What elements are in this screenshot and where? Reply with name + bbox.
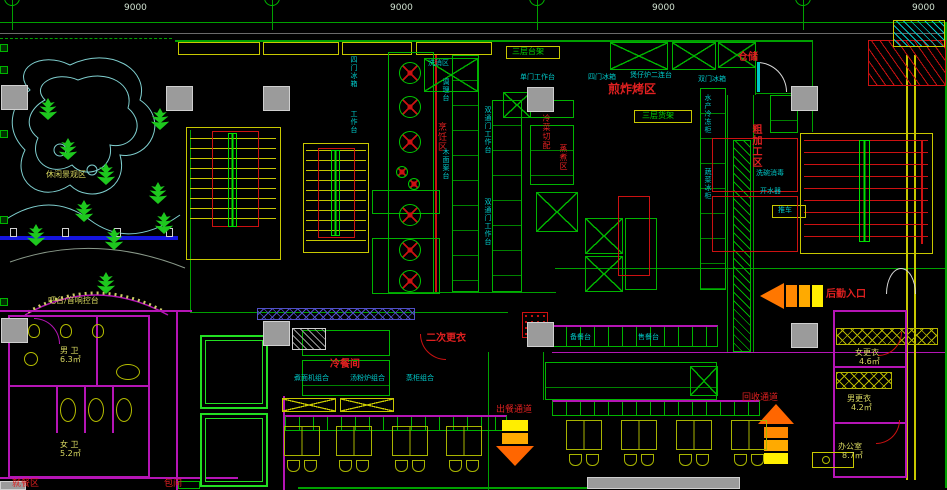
wall	[176, 312, 178, 490]
cabinet	[263, 42, 339, 55]
chair	[624, 454, 637, 466]
equip-label: 单门工作台	[520, 74, 555, 81]
chair	[287, 460, 300, 472]
dimension-label: 9000	[124, 4, 147, 13]
dining-table	[621, 420, 657, 450]
room-area-office: 8.7㎡	[842, 452, 863, 460]
burner-icon	[408, 178, 420, 190]
stair-rail	[859, 140, 870, 242]
grill	[712, 196, 798, 252]
chair	[569, 454, 582, 466]
wall	[0, 310, 192, 312]
level-mark	[0, 298, 8, 306]
zone-label-dining: 就餐区	[12, 480, 39, 489]
equip-label: 蒸柜组合	[406, 375, 434, 382]
dining-table	[392, 426, 428, 456]
wall	[914, 55, 916, 480]
chair	[304, 460, 317, 472]
arrow-head-left	[760, 283, 784, 309]
dining-table	[676, 420, 712, 450]
edge-tick	[10, 228, 17, 237]
equip-label: 双通门工作台	[484, 106, 491, 154]
stair-line	[921, 140, 923, 244]
ramp	[292, 328, 326, 350]
bar-counter	[552, 400, 760, 416]
dining-table	[336, 426, 372, 456]
chair	[356, 460, 369, 472]
desk-lamp	[822, 456, 830, 464]
arrow-block	[764, 427, 788, 438]
column	[1, 85, 28, 110]
room-label-landscape: 休闲景观区	[46, 171, 86, 179]
counter-yellow	[340, 398, 394, 412]
room-label-bar-audio-counter: 吧台/音响控台	[48, 297, 99, 305]
equip-label: 开水器	[760, 188, 781, 195]
grid-bubble	[4, 0, 20, 6]
burner-icon	[399, 204, 421, 226]
column	[263, 321, 290, 346]
lightwell	[200, 335, 268, 409]
equip	[618, 196, 650, 276]
arrow-head-down	[496, 446, 534, 466]
equip	[536, 192, 578, 232]
partition	[8, 385, 150, 387]
equip-label: 水产冷冻柜	[704, 94, 711, 134]
level-mark	[0, 44, 8, 52]
arrow-block	[786, 285, 797, 307]
equip-label: 备餐台	[570, 334, 591, 341]
equip-label: 洗碗消毒	[756, 170, 784, 177]
toilet	[116, 398, 132, 422]
level-mark	[0, 216, 8, 224]
garden-stone	[87, 165, 97, 175]
dimension-label: 9000	[390, 4, 413, 13]
burner-icon	[399, 239, 421, 261]
zone-label-private-room: 包间	[164, 480, 182, 489]
zone-label-steaming: 蒸煮区	[559, 144, 567, 171]
dining-table	[566, 420, 602, 450]
room-label-mens-locker: 男更衣	[847, 395, 871, 403]
room-label-womens-locker: 女更衣	[855, 349, 879, 357]
burner-icon	[399, 270, 421, 292]
arrow-block	[502, 433, 528, 444]
partition	[833, 366, 907, 368]
service-table	[587, 477, 740, 489]
chair	[466, 460, 479, 472]
urinal	[92, 324, 104, 338]
grid-bubble	[529, 0, 545, 6]
arrow-block	[764, 440, 788, 451]
rack-label: 三层货架	[642, 112, 674, 120]
equip-label: 售餐台	[638, 334, 659, 341]
toilet	[88, 398, 104, 422]
north-wall	[0, 33, 947, 34]
chair	[751, 454, 764, 466]
equip-label: 煮面机组合	[294, 375, 329, 382]
door-leaf	[757, 62, 760, 92]
equip-label: 四门冰箱	[588, 74, 616, 81]
room-area-womens-wc: 5.2㎡	[60, 450, 81, 458]
equip-label: 双门冰箱	[698, 76, 726, 83]
service-hatch	[257, 308, 415, 320]
room-area-womens-locker: 4.6㎡	[859, 358, 880, 366]
zone-label-frying-grill: 煎炸烤区	[608, 83, 656, 95]
partition	[112, 385, 114, 433]
cad-canvas[interactable]: 煎炸烤区仓储粗加工区烹饪区冷菜切配蒸煮区二次更衣冷餐间出餐通道回收通道后勤入口就…	[0, 0, 947, 490]
burner-icon	[396, 166, 408, 178]
room-area-mens-locker: 4.2㎡	[851, 404, 872, 412]
wall-dashed	[0, 38, 172, 39]
chair	[679, 454, 692, 466]
equip	[672, 42, 716, 70]
worktable	[492, 100, 522, 292]
chair	[449, 460, 462, 472]
equip-label: 蔬菜冰柜	[704, 168, 711, 200]
arrow-block	[799, 285, 810, 307]
room-label-womens-wc: 女 卫	[60, 441, 79, 449]
column	[263, 86, 290, 111]
equip-label: 推车	[778, 207, 792, 214]
door-arc	[757, 62, 787, 92]
arrow-block	[502, 420, 528, 431]
arrow-block	[764, 453, 788, 464]
equip-label: 工作台	[350, 110, 357, 134]
burner-icon	[399, 131, 421, 153]
urinal	[60, 324, 72, 338]
chair	[696, 454, 709, 466]
column	[527, 322, 554, 347]
level-mark	[0, 66, 8, 74]
water-edge	[0, 236, 178, 240]
dining-table	[284, 426, 320, 456]
toilet	[116, 364, 140, 380]
equip-label: 洗消区	[428, 60, 449, 67]
dining-table	[446, 426, 482, 456]
counter-yellow	[282, 398, 336, 412]
zone-label-cold-food-room: 冷餐间	[330, 360, 360, 370]
equip-label: 木面案台	[442, 148, 449, 180]
level-mark	[0, 130, 8, 138]
partition	[84, 385, 86, 433]
landscape-garden	[0, 30, 195, 320]
stair-rail	[228, 133, 237, 227]
axis-line	[0, 22, 947, 23]
chair	[734, 454, 747, 466]
equip-label: 汤粉炉组合	[350, 375, 385, 382]
room-area-mens-wc: 6.3㎡	[60, 356, 81, 364]
grid-bubble	[795, 0, 811, 6]
zone-label-storage: 仓储	[738, 53, 758, 63]
room-label-mens-wc: 男 卫	[60, 347, 79, 355]
equip-label: 四门冰箱	[350, 56, 357, 88]
burner-icon	[399, 62, 421, 84]
chair	[412, 460, 425, 472]
stair-rail	[331, 150, 340, 236]
zone-label-logistics-entrance: 后勤入口	[826, 290, 866, 300]
column	[791, 323, 818, 348]
toilet	[60, 398, 76, 422]
column	[791, 86, 818, 111]
chair	[395, 460, 408, 472]
zone-label-second-changing: 二次更衣	[426, 334, 466, 344]
dimension-label: 9000	[652, 4, 675, 13]
zone-label-rough-prep: 粗加工区	[750, 124, 760, 168]
column	[1, 318, 28, 343]
chair	[339, 460, 352, 472]
partition	[56, 385, 58, 433]
urinal	[28, 324, 40, 338]
zone-label-cold-dish: 冷菜切配	[542, 114, 550, 150]
sink	[24, 352, 38, 366]
wall	[543, 352, 544, 400]
chair	[586, 454, 599, 466]
equip	[690, 366, 718, 396]
equip-label: 双通门工作台	[484, 198, 491, 246]
dining-table	[731, 420, 767, 450]
equip-label: 调理台	[442, 78, 449, 102]
equip	[610, 42, 668, 70]
column	[527, 87, 554, 112]
rack-label: 三层台架	[512, 48, 544, 56]
room-label-office: 办公室	[838, 443, 862, 451]
stair-box	[893, 20, 945, 47]
zone-label-return-passage: 回收通道	[742, 394, 778, 403]
zone-label-serving-passage: 出餐通道	[496, 406, 532, 415]
equip-label: 煲仔炉二连台	[630, 72, 672, 79]
grid-bubble	[264, 0, 280, 6]
dimension-label: 9000	[912, 4, 935, 13]
arrow-block	[812, 285, 823, 307]
cabinet	[178, 42, 260, 55]
column	[166, 86, 193, 111]
wall	[298, 487, 613, 489]
edge-tick	[62, 228, 69, 237]
dining-arc	[10, 248, 185, 268]
door-arc	[886, 268, 901, 294]
chair	[641, 454, 654, 466]
lightwell	[200, 413, 268, 487]
burner-icon	[399, 96, 421, 118]
